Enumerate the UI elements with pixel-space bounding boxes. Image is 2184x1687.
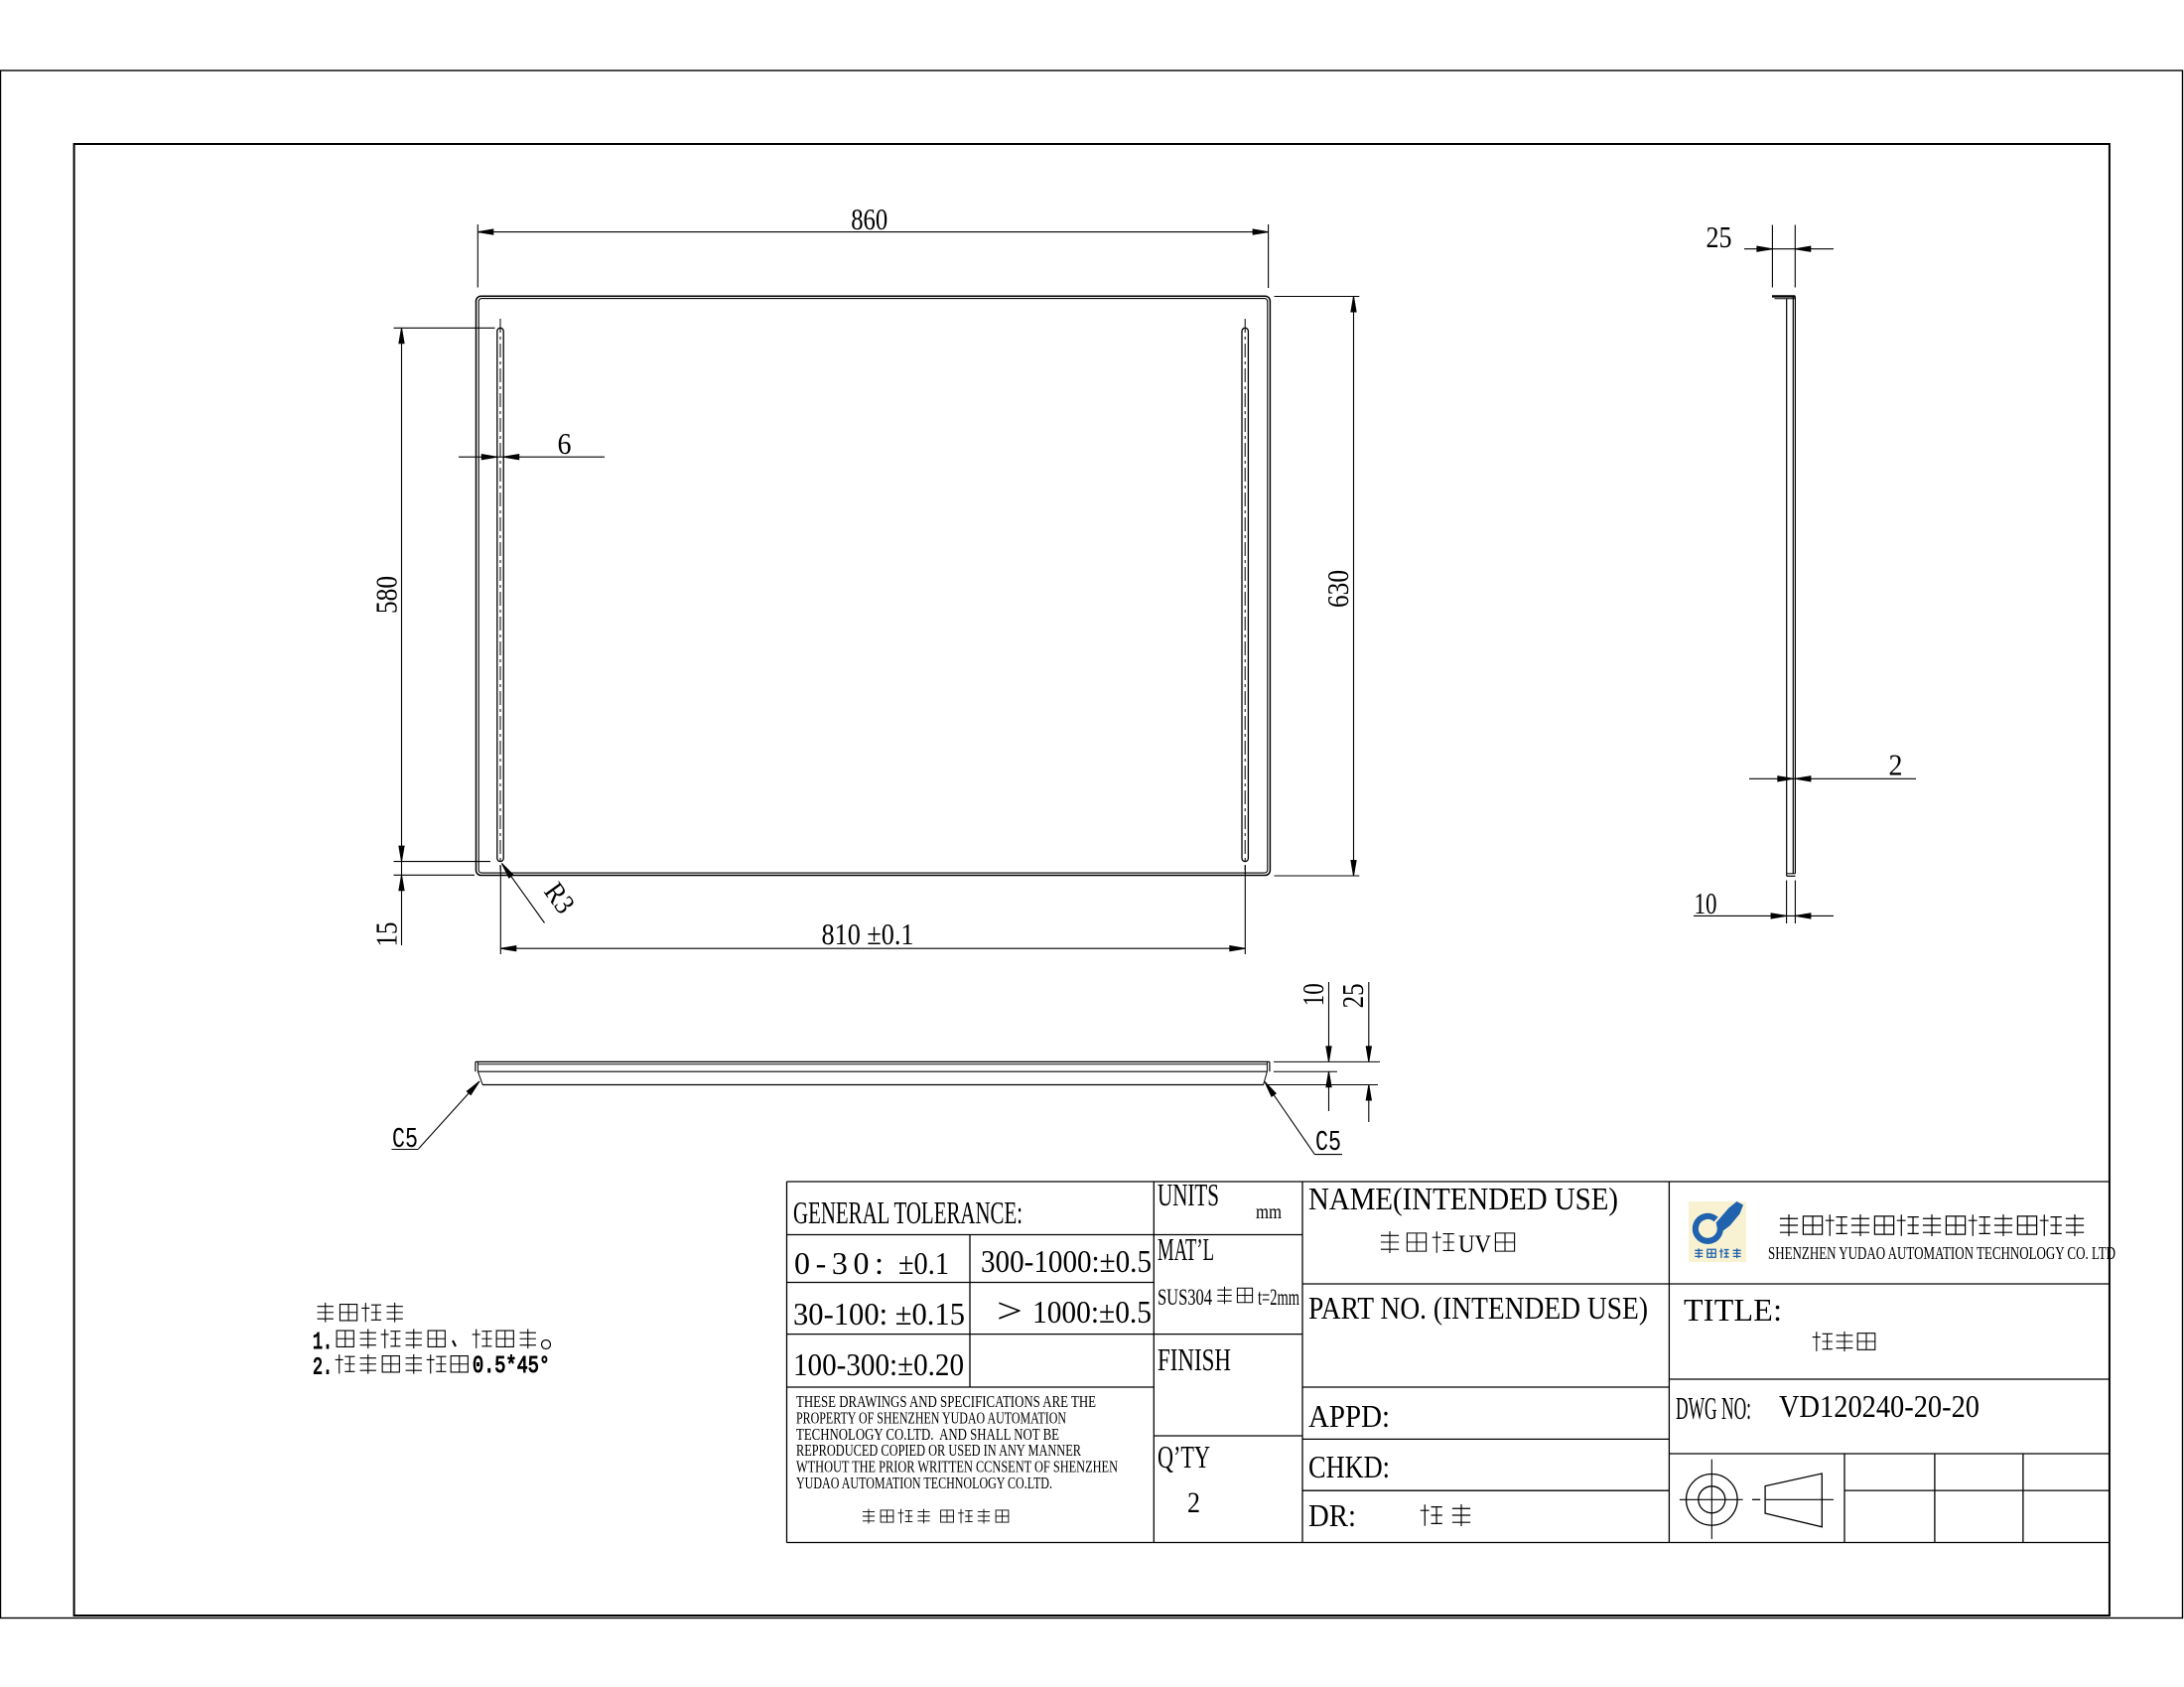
svg-text:10: 10: [1296, 983, 1330, 1006]
svg-text:TITLE:: TITLE:: [1684, 1292, 1782, 1328]
svg-text:10: 10: [1695, 886, 1717, 920]
svg-text:SUS304: SUS304: [1158, 1285, 1212, 1310]
svg-text:300-1000:±0.5: 300-1000:±0.5: [981, 1243, 1152, 1279]
svg-text:mm: mm: [1256, 1199, 1282, 1223]
svg-text:0-30:: 0-30:: [794, 1245, 884, 1281]
svg-text:C5: C5: [1315, 1126, 1341, 1159]
svg-text:±0.1: ±0.1: [898, 1245, 949, 1281]
svg-text:SHENZHEN YUDAO AUTOMATION TECH: SHENZHEN YUDAO AUTOMATION TECHNOLOGY CO.…: [1768, 1243, 2116, 1263]
svg-text:t=2mm: t=2mm: [1258, 1285, 1299, 1310]
svg-text:2.: 2.: [313, 1355, 333, 1382]
svg-text:6: 6: [558, 426, 572, 461]
svg-text:UNITS: UNITS: [1158, 1177, 1219, 1212]
svg-text:630: 630: [1320, 570, 1355, 608]
svg-text:Q’TY: Q’TY: [1158, 1439, 1210, 1475]
svg-text:GENERAL TOLERANCE:: GENERAL TOLERANCE:: [793, 1195, 1023, 1230]
svg-text:C5: C5: [392, 1123, 418, 1156]
svg-text:15: 15: [369, 922, 404, 947]
svg-text:1000:±0.5: 1000:±0.5: [1032, 1294, 1152, 1330]
svg-text:YUDAO AUTOMATION TECHNOLOGY CO: YUDAO AUTOMATION TECHNOLOGY CO.LTD.: [796, 1474, 1052, 1492]
svg-text:CHKD:: CHKD:: [1308, 1449, 1390, 1484]
svg-text:FINISH: FINISH: [1158, 1341, 1231, 1377]
svg-text:25: 25: [1706, 219, 1732, 254]
svg-text:25: 25: [1335, 983, 1370, 1008]
svg-text:DR:: DR:: [1308, 1497, 1356, 1533]
svg-text:0.5*45°: 0.5*45°: [473, 1353, 550, 1380]
svg-text:>: >: [997, 1291, 1023, 1331]
svg-text:APPD:: APPD:: [1308, 1398, 1390, 1434]
svg-text:MAT’L: MAT’L: [1158, 1231, 1214, 1267]
svg-text:100-300:±0.20: 100-300:±0.20: [793, 1346, 964, 1382]
svg-text:VD120240-20-20: VD120240-20-20: [1779, 1388, 1979, 1424]
svg-text:810 ±0.1: 810 ±0.1: [822, 916, 914, 951]
svg-text:30-100: ±0.15: 30-100: ±0.15: [793, 1296, 965, 1332]
svg-text:R3: R3: [538, 877, 582, 919]
svg-text:PART NO. (INTENDED USE): PART NO. (INTENDED USE): [1308, 1290, 1648, 1326]
svg-text:2: 2: [1889, 748, 1903, 782]
svg-text:2: 2: [1187, 1486, 1200, 1519]
svg-text:580: 580: [369, 576, 404, 614]
svg-text:DWG NO:: DWG NO:: [1676, 1390, 1751, 1426]
svg-text:UV: UV: [1458, 1231, 1491, 1258]
svg-text:860: 860: [851, 202, 887, 236]
svg-text:1.: 1.: [313, 1330, 333, 1356]
svg-text:NAME(INTENDED USE): NAME(INTENDED USE): [1308, 1181, 1618, 1216]
